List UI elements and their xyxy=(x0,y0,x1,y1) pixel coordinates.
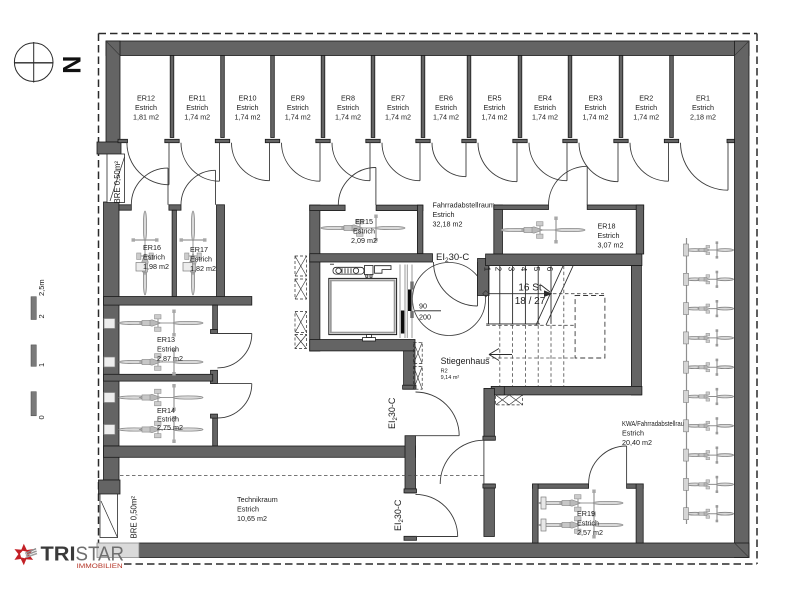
svg-text:32,18 m2: 32,18 m2 xyxy=(433,220,463,229)
svg-text:3,07 m2: 3,07 m2 xyxy=(598,241,624,250)
svg-text:Stiegenhaus: Stiegenhaus xyxy=(441,356,491,366)
svg-text:BRE 0,50m²: BRE 0,50m² xyxy=(130,496,139,539)
svg-text:Estrich: Estrich xyxy=(190,255,212,264)
svg-text:1,74 m2: 1,74 m2 xyxy=(184,113,210,122)
svg-text:Estrich: Estrich xyxy=(484,103,506,112)
svg-text:1,74 m2: 1,74 m2 xyxy=(482,113,508,122)
svg-text:Estrich: Estrich xyxy=(135,103,157,112)
svg-text:ER7: ER7 xyxy=(391,94,405,103)
svg-text:1: 1 xyxy=(37,363,46,367)
svg-text:6: 6 xyxy=(545,267,554,272)
svg-text:Estrich: Estrich xyxy=(534,103,556,112)
svg-text:1,81 m2: 1,81 m2 xyxy=(133,113,159,122)
svg-text:N: N xyxy=(57,56,85,74)
svg-text:R2: R2 xyxy=(441,369,448,375)
svg-text:ER17: ER17 xyxy=(190,245,208,254)
svg-text:Estrich: Estrich xyxy=(157,345,179,354)
svg-text:1,98 m2: 1,98 m2 xyxy=(143,262,169,271)
svg-text:1,74 m2: 1,74 m2 xyxy=(433,113,459,122)
svg-text:Estrich: Estrich xyxy=(287,103,309,112)
svg-text:1,74 m2: 1,74 m2 xyxy=(335,113,361,122)
svg-text:3: 3 xyxy=(506,267,515,272)
svg-text:ER19: ER19 xyxy=(577,509,595,518)
svg-text:ER8: ER8 xyxy=(341,94,355,103)
svg-text:ER11: ER11 xyxy=(188,94,205,103)
svg-text:Estrich: Estrich xyxy=(585,103,607,112)
svg-text:2,75 m2: 2,75 m2 xyxy=(157,423,183,432)
svg-text:9,14 m²: 9,14 m² xyxy=(441,375,460,381)
svg-text:ER12: ER12 xyxy=(137,94,155,103)
svg-text:1,82 m2: 1,82 m2 xyxy=(190,264,216,273)
svg-text:ER15: ER15 xyxy=(355,217,373,226)
svg-text:Estrich: Estrich xyxy=(635,103,657,112)
svg-text:0: 0 xyxy=(37,415,46,419)
svg-text:ER13: ER13 xyxy=(157,335,175,344)
svg-text:EI230-C: EI230-C xyxy=(436,252,469,264)
svg-text:Fahrradabstellraum: Fahrradabstellraum xyxy=(433,201,495,210)
svg-text:Estrich: Estrich xyxy=(387,103,409,112)
svg-text:ER18: ER18 xyxy=(598,222,616,231)
svg-text:1,74 m2: 1,74 m2 xyxy=(532,113,558,122)
svg-text:2,5m: 2,5m xyxy=(37,279,46,296)
svg-text:2,18 m2: 2,18 m2 xyxy=(690,113,716,122)
svg-text:Estrich: Estrich xyxy=(143,253,165,262)
svg-text:ER10: ER10 xyxy=(239,94,257,103)
svg-text:ER2: ER2 xyxy=(639,94,653,103)
svg-text:1,74 m2: 1,74 m2 xyxy=(583,113,609,122)
svg-text:1,74 m2: 1,74 m2 xyxy=(285,113,311,122)
svg-text:ER9: ER9 xyxy=(291,94,305,103)
svg-text:BRE 0,50m²: BRE 0,50m² xyxy=(113,161,122,204)
svg-text:16 St: 16 St xyxy=(518,283,542,294)
svg-text:ER4: ER4 xyxy=(538,94,552,103)
svg-text:Estrich: Estrich xyxy=(598,231,620,240)
svg-text:2,09 m2: 2,09 m2 xyxy=(351,236,377,245)
svg-text:Estrich: Estrich xyxy=(622,429,644,438)
svg-text:Estrich: Estrich xyxy=(692,103,714,112)
svg-text:Estrich: Estrich xyxy=(337,103,359,112)
svg-text:200: 200 xyxy=(419,313,431,322)
svg-text:TRI: TRI xyxy=(41,544,76,566)
svg-text:10,65 m2: 10,65 m2 xyxy=(237,514,267,523)
svg-text:ER5: ER5 xyxy=(488,94,502,103)
svg-text:1,74 m2: 1,74 m2 xyxy=(633,113,659,122)
svg-text:ER1: ER1 xyxy=(696,94,710,103)
svg-text:IMMOBILIEN: IMMOBILIEN xyxy=(77,563,123,570)
svg-text:Estrich: Estrich xyxy=(237,505,259,514)
svg-text:Estrich: Estrich xyxy=(433,210,455,219)
svg-text:ER6: ER6 xyxy=(439,94,453,103)
svg-text:KWA/Fahrradabstellraum: KWA/Fahrradabstellraum xyxy=(622,419,689,428)
svg-text:ER3: ER3 xyxy=(589,94,603,103)
svg-text:4: 4 xyxy=(519,267,528,272)
svg-text:2,87 m2: 2,87 m2 xyxy=(157,354,183,363)
svg-text:1: 1 xyxy=(482,267,491,272)
svg-text:20,40 m2: 20,40 m2 xyxy=(622,438,652,447)
svg-text:2: 2 xyxy=(37,314,46,318)
svg-text:1,74 m2: 1,74 m2 xyxy=(385,113,411,122)
svg-text:Estrich: Estrich xyxy=(577,519,599,528)
svg-text:Estrich: Estrich xyxy=(237,103,259,112)
svg-text:STAR: STAR xyxy=(76,544,125,566)
svg-text:Estrich: Estrich xyxy=(435,103,457,112)
svg-text:2: 2 xyxy=(494,267,503,272)
svg-text:Estrich: Estrich xyxy=(186,103,208,112)
svg-text:2,57 m2: 2,57 m2 xyxy=(577,528,603,537)
svg-text:90: 90 xyxy=(419,302,427,311)
svg-text:Technikraum: Technikraum xyxy=(237,495,278,504)
svg-text:18 / 27: 18 / 27 xyxy=(515,296,546,307)
svg-text:ER16: ER16 xyxy=(143,243,161,252)
svg-text:1,74 m2: 1,74 m2 xyxy=(235,113,261,122)
svg-text:Estrich: Estrich xyxy=(353,227,375,236)
svg-text:5: 5 xyxy=(532,267,541,272)
